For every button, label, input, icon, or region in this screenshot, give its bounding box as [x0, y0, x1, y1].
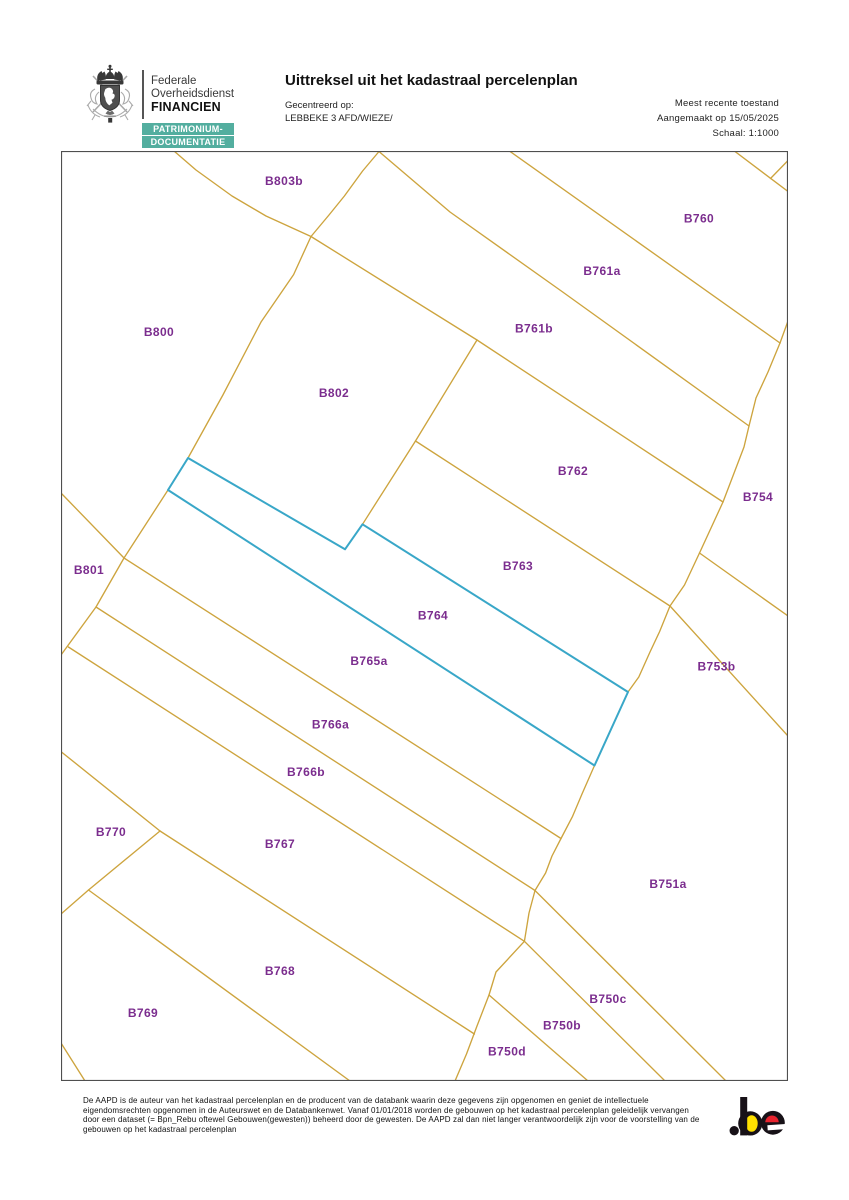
svg-text:B754: B754: [743, 490, 773, 504]
svg-text:B801: B801: [74, 563, 104, 577]
svg-text:B753b: B753b: [697, 660, 735, 674]
svg-text:B766b: B766b: [287, 765, 325, 779]
svg-text:B770: B770: [96, 825, 126, 839]
svg-text:B803b: B803b: [265, 174, 303, 188]
svg-text:B761b: B761b: [515, 322, 553, 336]
svg-text:B761a: B761a: [583, 264, 620, 278]
svg-text:B762: B762: [558, 464, 588, 478]
svg-text:B765a: B765a: [350, 654, 387, 668]
svg-text:B802: B802: [319, 386, 349, 400]
svg-text:B760: B760: [684, 212, 714, 226]
svg-text:B751a: B751a: [649, 877, 686, 891]
svg-text:B764: B764: [418, 609, 448, 623]
svg-text:B767: B767: [265, 837, 295, 851]
svg-text:B768: B768: [265, 964, 295, 978]
svg-text:B769: B769: [128, 1006, 158, 1020]
svg-text:B750b: B750b: [543, 1019, 581, 1033]
svg-text:B750d: B750d: [488, 1045, 526, 1059]
svg-text:B750c: B750c: [589, 992, 626, 1006]
svg-text:B766a: B766a: [312, 718, 349, 732]
svg-text:B763: B763: [503, 559, 533, 573]
svg-text:B800: B800: [144, 325, 174, 339]
